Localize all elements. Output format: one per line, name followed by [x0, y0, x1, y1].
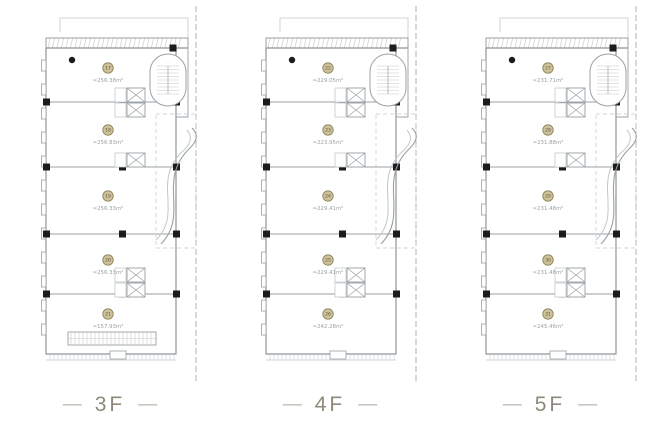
room-label: 20≈256.33m²: [93, 255, 124, 276]
floor-label-5f: — 5F —: [490, 393, 611, 417]
column-square: [393, 231, 400, 238]
room-number: 29: [545, 194, 551, 200]
elevator-shafts: [555, 88, 585, 297]
elevator-shafts: [115, 88, 145, 297]
column-dot: [69, 57, 75, 63]
column-square: [43, 164, 50, 171]
room-area: ≈229.05m²: [313, 77, 344, 84]
room-area: ≈256.83m²: [93, 139, 124, 146]
room-label: 17≈256.38m²: [93, 63, 124, 84]
label-dash-right: —: [138, 394, 157, 416]
room-area: ≈242.28m²: [313, 323, 344, 330]
room-label: 30≈231.48m²: [533, 255, 564, 276]
floorplan-4f-drawing: 22≈229.05m²23≈223.95m²24≈229.41m²25≈229.…: [230, 2, 430, 387]
room-area: ≈231.88m²: [533, 139, 564, 146]
upper-boundary: [280, 18, 408, 38]
column-square: [263, 231, 270, 238]
column-square: [173, 231, 180, 238]
room-number: 23: [325, 128, 331, 134]
floor-label-text: 4F: [315, 393, 346, 417]
room-number: 22: [325, 66, 331, 72]
room-label: 18≈256.83m²: [93, 125, 124, 146]
room-label: 26≈242.28m²: [313, 309, 344, 330]
room-area: ≈231.48m²: [533, 269, 564, 276]
floorplans-sheet: 17≈256.38m²18≈256.83m²19≈256.33m²20≈256.…: [0, 0, 660, 447]
top-hatch-band: [46, 38, 188, 48]
column-square: [483, 231, 490, 238]
column-square: [263, 164, 270, 171]
room-label: 22≈229.05m²: [313, 63, 344, 84]
label-dash-right: —: [578, 394, 597, 416]
label-dash-left: —: [63, 394, 82, 416]
upper-boundary: [60, 18, 188, 38]
column-dot: [509, 57, 515, 63]
column-square: [613, 291, 620, 298]
column-dot: [289, 57, 295, 63]
room-number: 17: [105, 66, 111, 72]
room-area: ≈229.41m²: [313, 205, 344, 212]
column-square: [263, 99, 270, 106]
label-dash-left: —: [503, 394, 522, 416]
room-area: ≈229.41m²: [313, 269, 344, 276]
room-label: 31≈245.46m²: [533, 309, 564, 330]
room-area: ≈223.95m²: [313, 139, 344, 146]
label-dash-right: —: [358, 394, 377, 416]
top-hatch-band: [486, 38, 628, 48]
column-square: [610, 45, 617, 52]
column-square: [483, 291, 490, 298]
column-square: [43, 291, 50, 298]
room-number: 31: [545, 312, 551, 318]
room-label: 28≈231.88m²: [533, 125, 564, 146]
floorplan-3f-drawing: 17≈256.38m²18≈256.83m²19≈256.33m²20≈256.…: [10, 2, 210, 387]
stair-core: [150, 54, 186, 106]
room-number: 27: [545, 66, 551, 72]
column-square: [483, 164, 490, 171]
floor-label-4f: — 4F —: [270, 393, 391, 417]
room-label: 19≈256.33m²: [93, 191, 124, 212]
column-square: [170, 45, 177, 52]
room-area: ≈157.93m²: [93, 323, 124, 330]
column-square: [483, 99, 490, 106]
plan-column-5f: 27≈231.71m²28≈231.88m²29≈231.48m²30≈231.…: [440, 0, 660, 447]
room-label: 29≈231.48m²: [533, 191, 564, 212]
room-number: 18: [105, 128, 111, 134]
room-label: 27≈231.71m²: [533, 63, 564, 84]
floor-label-text: 3F: [95, 393, 126, 417]
column-square: [559, 231, 566, 238]
room-area: ≈231.48m²: [533, 205, 564, 212]
room-area: ≈256.33m²: [93, 269, 124, 276]
room-area: ≈256.33m²: [93, 205, 124, 212]
column-square: [339, 231, 346, 238]
room-number: 19: [105, 194, 111, 200]
column-square: [43, 231, 50, 238]
room-area: ≈231.71m²: [533, 77, 564, 84]
elevator-shafts: [335, 88, 365, 297]
room-area: ≈245.46m²: [533, 323, 564, 330]
room-label: 24≈229.41m²: [313, 191, 344, 212]
upper-boundary: [500, 18, 628, 38]
column-square: [119, 231, 126, 238]
room-number: 26: [325, 312, 331, 318]
floorplan-5f-drawing: 27≈231.71m²28≈231.88m²29≈231.48m²30≈231.…: [450, 2, 650, 387]
room-area: ≈256.38m²: [93, 77, 124, 84]
room-number: 28: [545, 128, 551, 134]
room-label: 21≈157.93m²: [93, 309, 124, 330]
stair-core: [590, 54, 626, 106]
stair-core: [370, 54, 406, 106]
room-number: 24: [325, 194, 331, 200]
label-dash-left: —: [283, 394, 302, 416]
top-hatch-band: [266, 38, 408, 48]
column-square: [43, 99, 50, 106]
floor-label-text: 5F: [535, 393, 566, 417]
column-square: [613, 231, 620, 238]
room-number: 30: [545, 258, 551, 264]
plan-column-4f: 22≈229.05m²23≈223.95m²24≈229.41m²25≈229.…: [220, 0, 440, 447]
column-square: [390, 45, 397, 52]
room-number: 20: [105, 258, 111, 264]
plan-column-3f: 17≈256.38m²18≈256.83m²19≈256.33m²20≈256.…: [0, 0, 220, 447]
room-number: 25: [325, 258, 331, 264]
escalator-strip: [68, 332, 156, 345]
column-square: [393, 291, 400, 298]
floor-label-3f: — 3F —: [50, 393, 171, 417]
column-square: [173, 291, 180, 298]
room-number: 21: [105, 312, 111, 318]
room-label: 25≈229.41m²: [313, 255, 344, 276]
room-label: 23≈223.95m²: [313, 125, 344, 146]
column-square: [263, 291, 270, 298]
